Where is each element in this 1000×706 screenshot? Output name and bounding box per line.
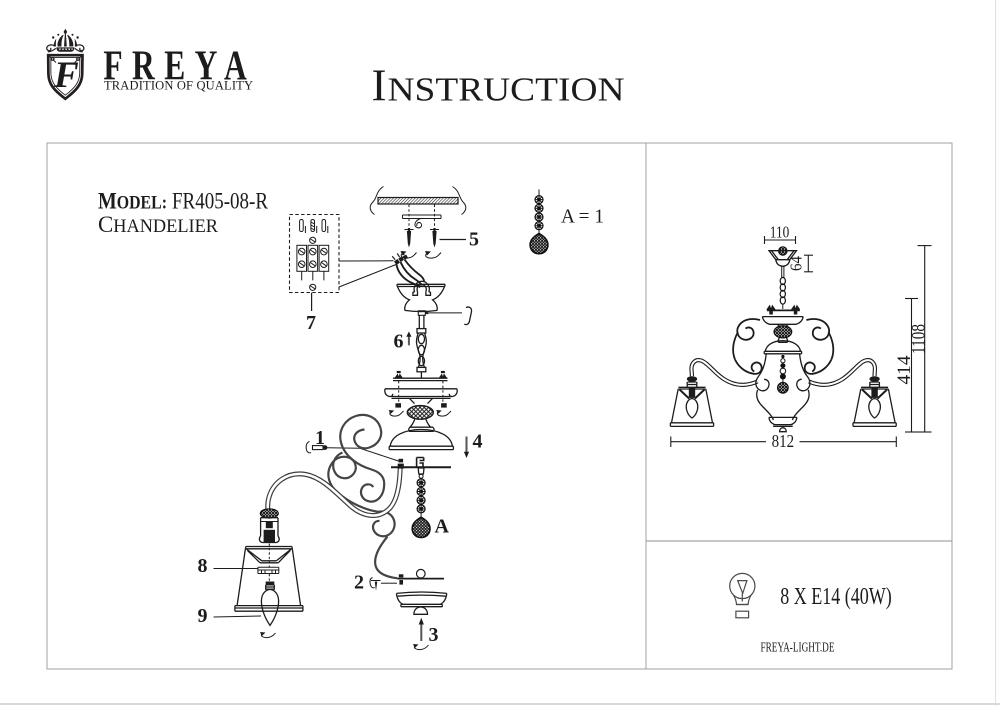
svg-text:3: 3	[429, 624, 439, 646]
svg-text:414: 414	[894, 355, 915, 385]
svg-text:FREYA-LIGHT.DE: FREYA-LIGHT.DE	[761, 640, 835, 655]
svg-text:6: 6	[394, 330, 404, 352]
svg-text:64: 64	[787, 256, 806, 271]
svg-text:F: F	[53, 55, 79, 96]
svg-text:8 X E14 (40W): 8 X E14 (40W)	[780, 584, 892, 610]
svg-text:4: 4	[473, 431, 483, 453]
svg-text:A: A	[435, 516, 450, 538]
svg-text:MODEL:: MODEL:	[98, 189, 167, 215]
svg-text:110: 110	[770, 223, 790, 242]
svg-text:TRADITION OF QUALITY: TRADITION OF QUALITY	[104, 79, 253, 93]
svg-text:5: 5	[469, 229, 479, 251]
svg-text:I: I	[372, 61, 387, 111]
svg-text:7: 7	[306, 312, 316, 334]
svg-text:9: 9	[198, 605, 208, 627]
svg-text:FR405-08-R: FR405-08-R	[172, 189, 269, 214]
svg-text:NSTRUCTION: NSTRUCTION	[388, 72, 625, 109]
svg-text:2: 2	[354, 572, 364, 594]
svg-text:A = 1: A = 1	[561, 206, 604, 228]
svg-text:812: 812	[772, 431, 795, 451]
svg-text:8: 8	[198, 555, 208, 577]
svg-text:CHANDELIER: CHANDELIER	[98, 212, 218, 238]
svg-text:1108: 1108	[908, 324, 929, 354]
